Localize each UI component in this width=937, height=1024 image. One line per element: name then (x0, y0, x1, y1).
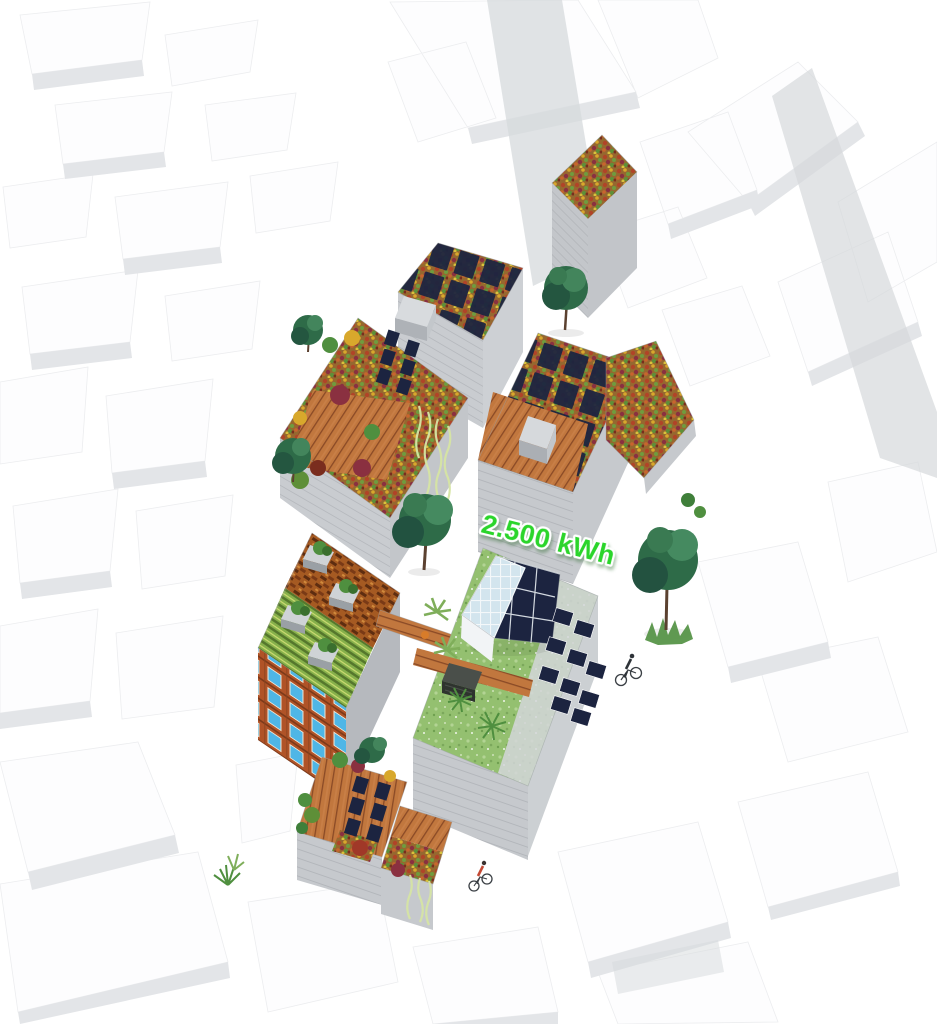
annex-shrubs (681, 493, 706, 518)
cyclist-south (469, 861, 492, 891)
cyclist-east (616, 654, 642, 686)
tree-roof-west-1 (291, 315, 323, 352)
context-buildings (0, 0, 937, 1024)
eco-district-axonometric-rendering: 2.500 kWh (0, 0, 937, 1024)
tree-north (542, 266, 588, 337)
site-rendering-canvas: 2.500 kWh (0, 0, 937, 1024)
flower-cluster (421, 631, 429, 639)
tree-east (632, 527, 698, 645)
greenhouse-building-center (413, 548, 607, 860)
ground-plant (214, 854, 244, 885)
